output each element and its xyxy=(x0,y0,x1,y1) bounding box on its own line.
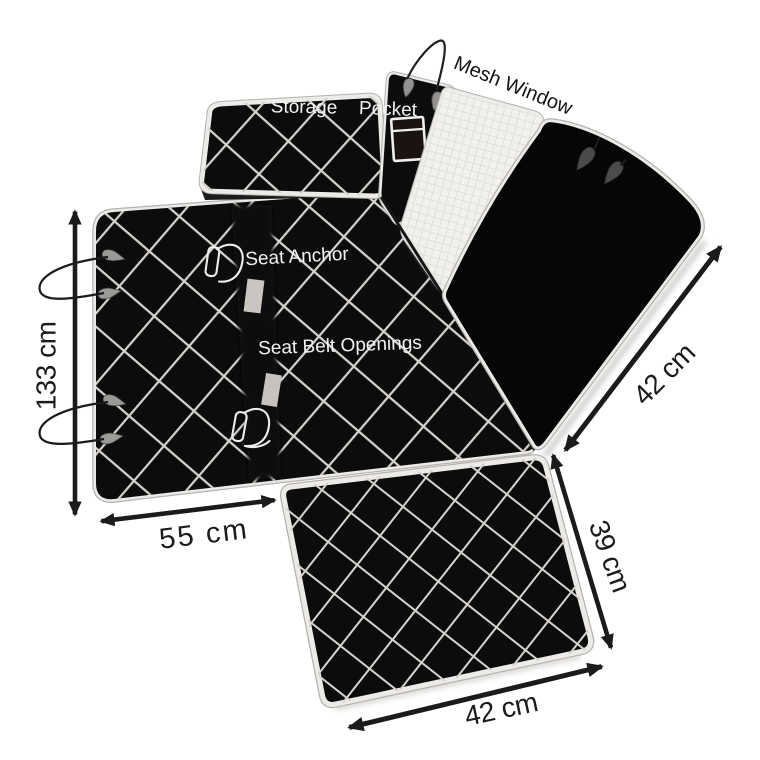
svg-text:42 cm: 42 cm xyxy=(462,686,541,732)
svg-text:133 cm: 133 cm xyxy=(31,322,62,411)
svg-text:Pocket: Pocket xyxy=(359,98,419,121)
svg-text:Storage: Storage xyxy=(271,96,338,118)
svg-text:42 cm: 42 cm xyxy=(627,337,701,411)
svg-text:55 cm: 55 cm xyxy=(157,513,250,556)
